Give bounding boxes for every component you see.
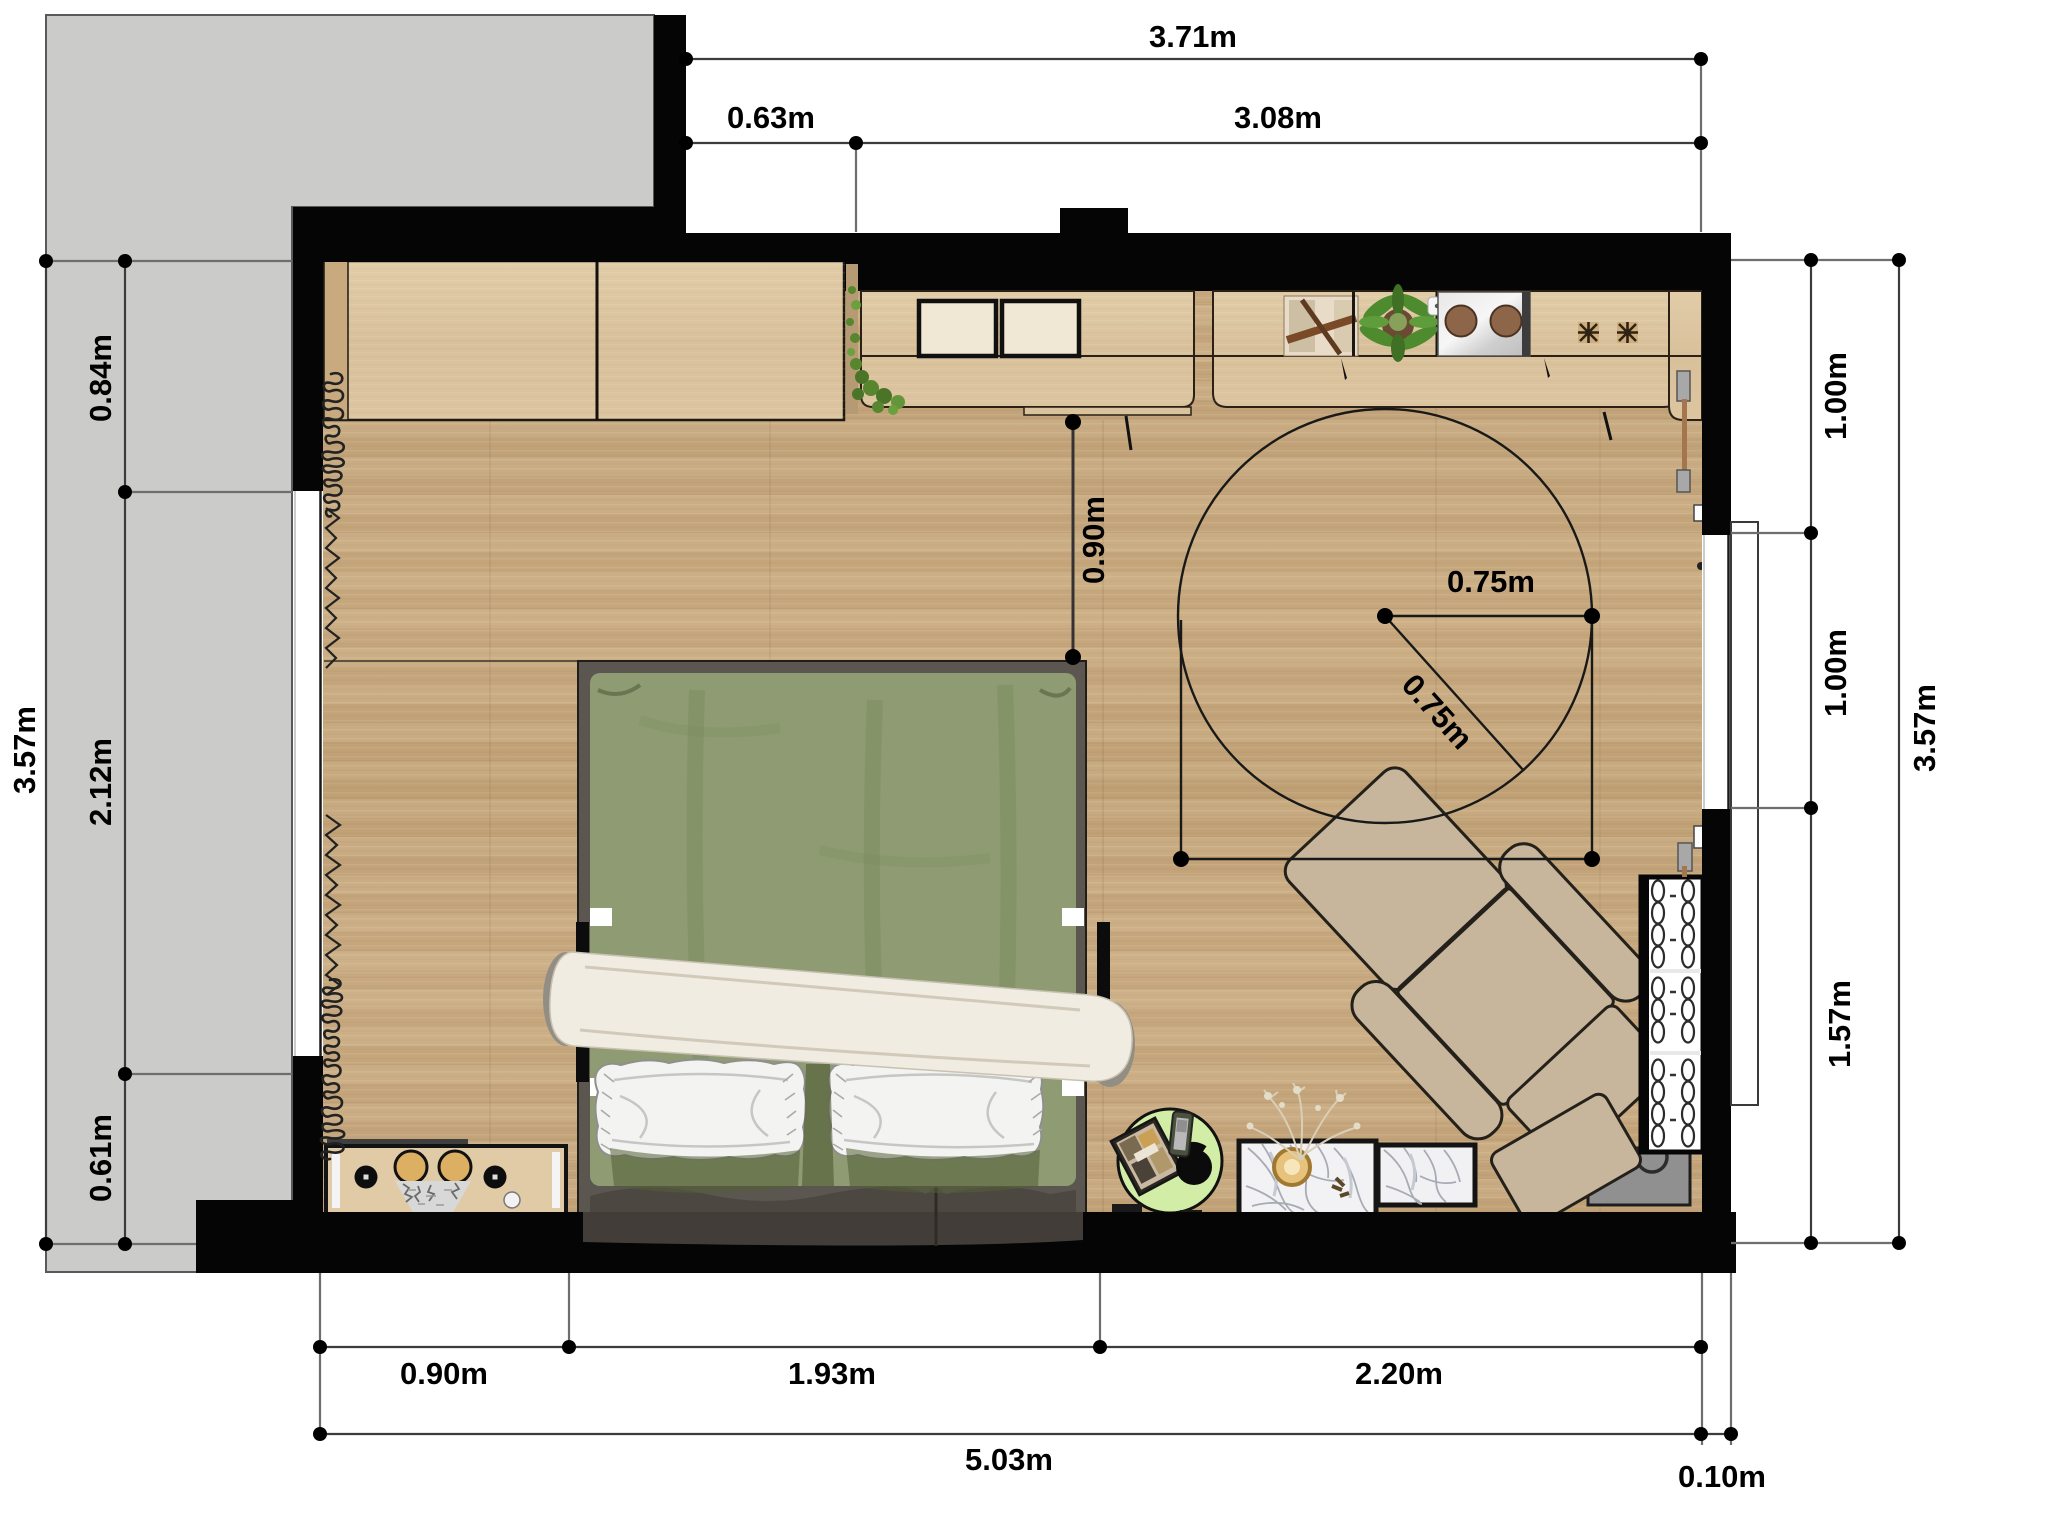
svg-text:2.20m: 2.20m <box>1355 1356 1443 1391</box>
svg-text:3.71m: 3.71m <box>1149 19 1237 54</box>
svg-text:1.93m: 1.93m <box>788 1356 876 1391</box>
svg-text:0.61m: 0.61m <box>83 1114 118 1202</box>
svg-text:0.75m: 0.75m <box>1447 564 1535 599</box>
svg-text:5.03m: 5.03m <box>965 1442 1053 1477</box>
svg-text:3.57m: 3.57m <box>1907 684 1942 772</box>
svg-text:0.90m: 0.90m <box>400 1356 488 1391</box>
svg-text:1.57m: 1.57m <box>1822 980 1857 1068</box>
svg-text:0.10m: 0.10m <box>1678 1459 1766 1494</box>
svg-text:0.84m: 0.84m <box>83 334 118 422</box>
svg-text:1.00m: 1.00m <box>1818 629 1853 717</box>
svg-text:1.00m: 1.00m <box>1818 352 1853 440</box>
svg-text:0.90m: 0.90m <box>1076 496 1111 584</box>
svg-text:0.63m: 0.63m <box>727 100 815 135</box>
svg-text:3.08m: 3.08m <box>1234 100 1322 135</box>
svg-text:3.57m: 3.57m <box>7 706 42 794</box>
svg-text:2.12m: 2.12m <box>83 738 118 826</box>
